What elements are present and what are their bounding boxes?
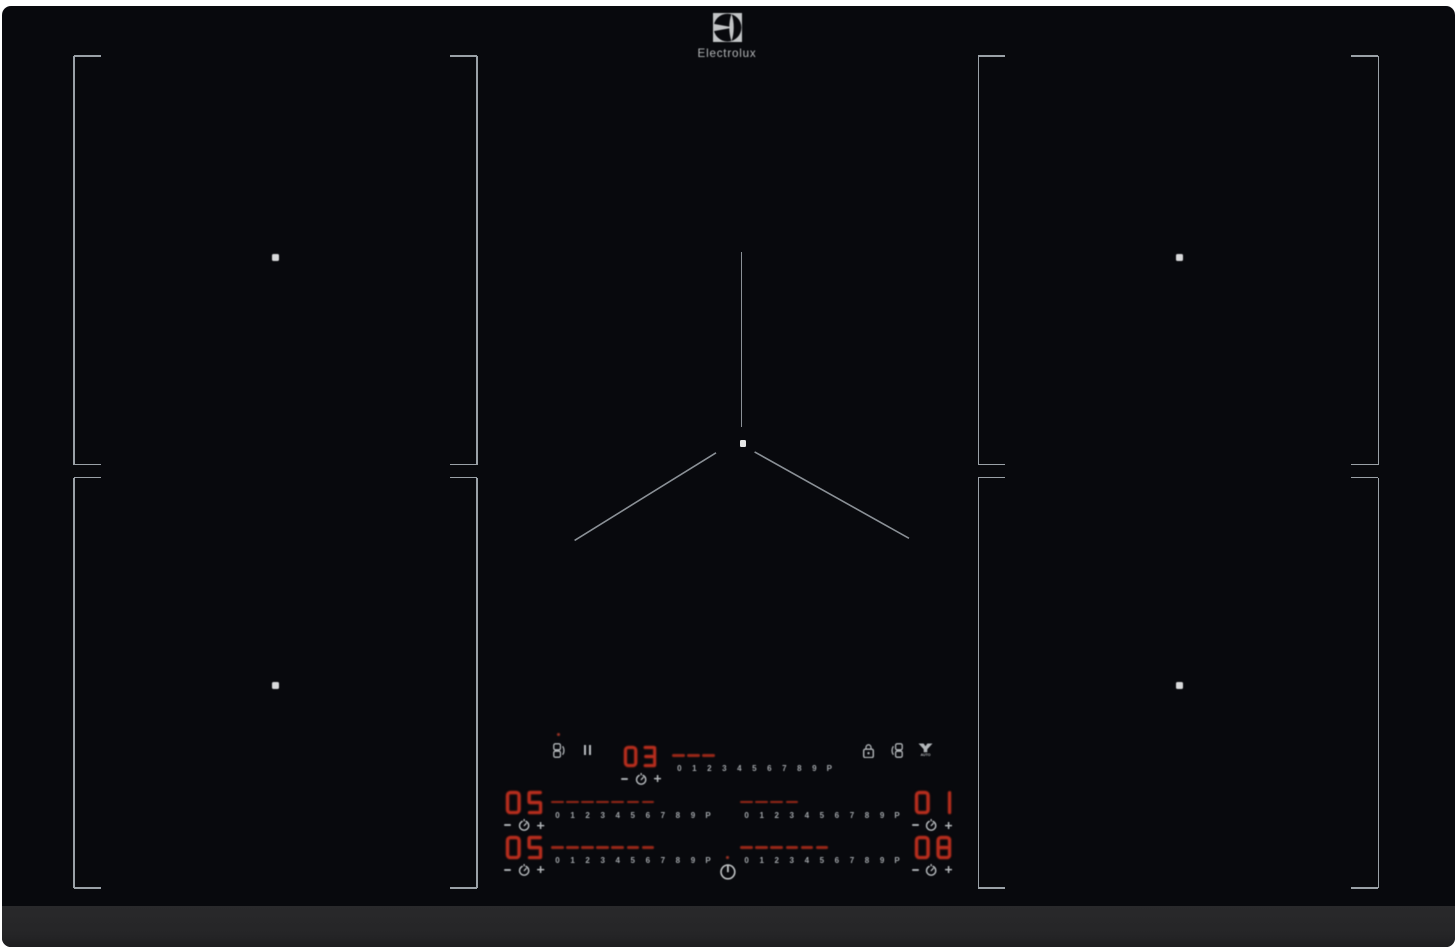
svg-text:AUTO: AUTO bbox=[920, 753, 930, 757]
